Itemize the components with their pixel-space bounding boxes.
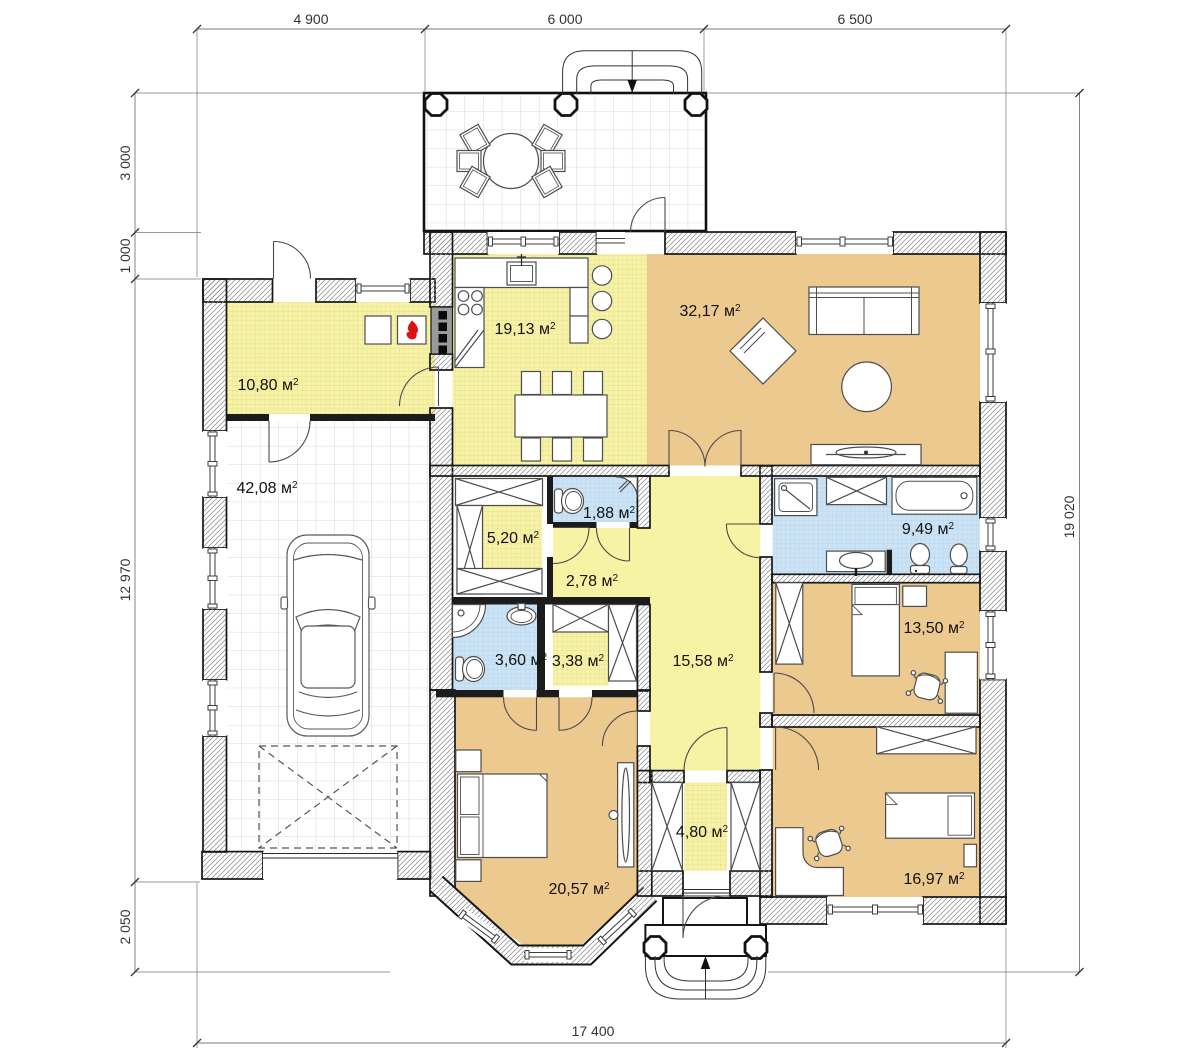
svg-text:6 000: 6 000	[547, 11, 582, 27]
svg-text:2 050: 2 050	[117, 909, 133, 944]
svg-text:5,20 м2: 5,20 м2	[487, 530, 540, 547]
svg-text:13,50 м2: 13,50 м2	[903, 620, 964, 637]
svg-text:17 400: 17 400	[572, 1023, 615, 1039]
svg-text:32,17 м2: 32,17 м2	[679, 303, 740, 320]
svg-text:42,08 м2: 42,08 м2	[236, 480, 297, 497]
svg-text:10,80 м2: 10,80 м2	[237, 377, 298, 394]
svg-text:3 000: 3 000	[117, 145, 133, 180]
svg-text:19 020: 19 020	[1061, 495, 1077, 538]
svg-text:3,60 м2: 3,60 м2	[495, 652, 548, 669]
svg-text:15,58 м2: 15,58 м2	[672, 653, 733, 670]
svg-text:1,88 м2: 1,88 м2	[583, 505, 636, 522]
svg-text:9,49 м2: 9,49 м2	[902, 521, 955, 538]
svg-text:2,78 м2: 2,78 м2	[566, 573, 619, 590]
svg-text:4 900: 4 900	[293, 11, 328, 27]
svg-text:4,80 м2: 4,80 м2	[676, 824, 729, 841]
svg-text:12 970: 12 970	[117, 558, 133, 601]
svg-text:20,57 м2: 20,57 м2	[548, 881, 609, 898]
svg-text:6 500: 6 500	[837, 11, 872, 27]
svg-text:3,38 м2: 3,38 м2	[552, 653, 605, 670]
svg-text:1 000: 1 000	[117, 238, 133, 273]
svg-text:19,13 м2: 19,13 м2	[494, 321, 555, 338]
svg-text:16,97 м2: 16,97 м2	[903, 871, 964, 888]
